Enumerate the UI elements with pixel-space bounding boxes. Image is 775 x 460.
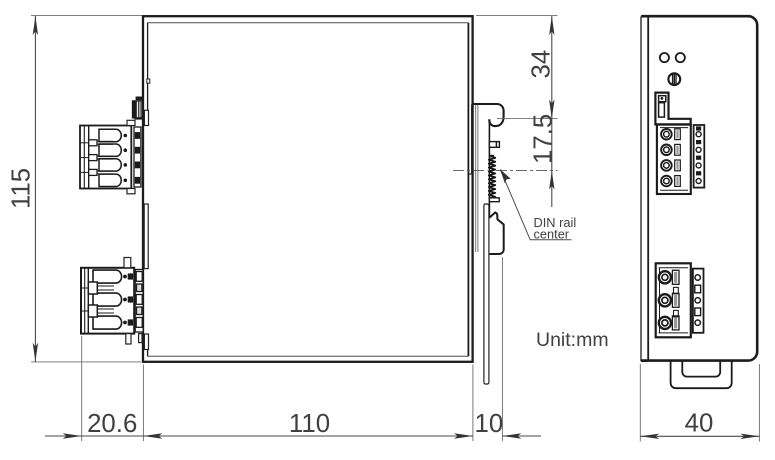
svg-text:110: 110 [289, 410, 330, 438]
svg-text:20.6: 20.6 [87, 410, 137, 438]
svg-text:115: 115 [8, 168, 36, 209]
svg-text:10: 10 [475, 410, 504, 438]
svg-text:17.5: 17.5 [529, 114, 557, 164]
svg-text:center: center [534, 227, 570, 242]
svg-text:40: 40 [685, 410, 714, 438]
svg-text:34: 34 [527, 50, 555, 79]
svg-text:Unit:mm: Unit:mm [536, 329, 609, 351]
